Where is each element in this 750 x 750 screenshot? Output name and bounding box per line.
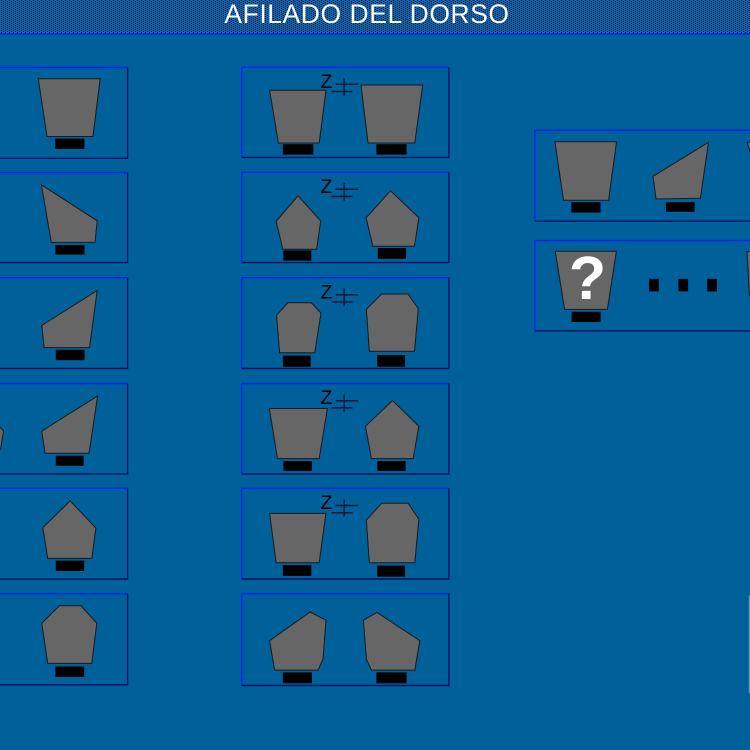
- svg-text:Z: Z: [321, 387, 333, 409]
- svg-text:Z: Z: [321, 492, 333, 514]
- svg-text:AFILADO DEL DORSO: AFILADO DEL DORSO: [224, 0, 509, 29]
- svg-text:?: ?: [569, 244, 606, 312]
- svg-text:Z: Z: [321, 281, 333, 303]
- svg-text:Z: Z: [321, 71, 333, 93]
- svg-text:Z: Z: [321, 176, 333, 198]
